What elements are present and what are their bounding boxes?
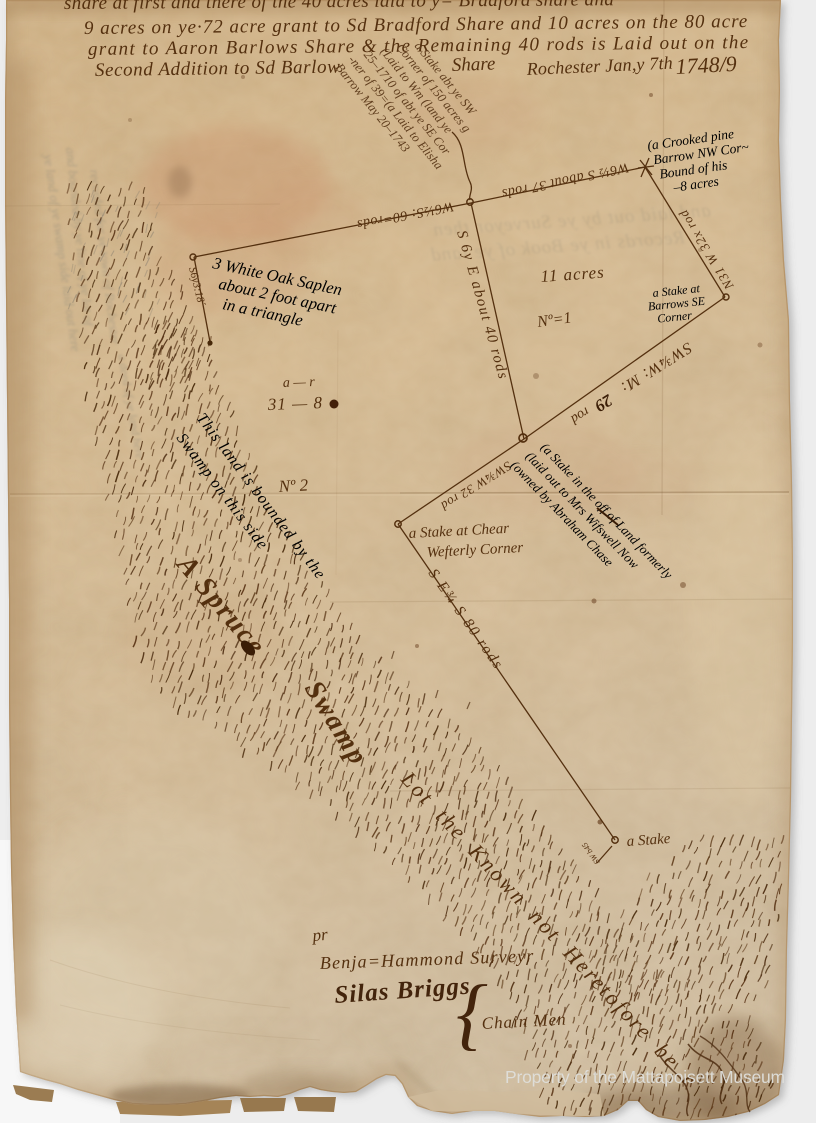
svg-text:Share: Share (451, 53, 495, 76)
svg-text:Second Addition to Sd Barlow: Second Addition to Sd Barlow (95, 57, 341, 81)
svg-text:31 — 8: 31 — 8 (266, 393, 323, 414)
svg-text:Nº 2: Nº 2 (277, 475, 309, 496)
svg-text:pr: pr (311, 925, 329, 945)
svg-text:a Stake: a Stake (626, 831, 671, 850)
svg-text:1748/9: 1748/9 (675, 51, 737, 79)
svg-text:Property of the Mattapoisett M: Property of the Mattapoisett Museum (505, 1067, 785, 1087)
svg-text:a — r: a — r (283, 375, 316, 391)
